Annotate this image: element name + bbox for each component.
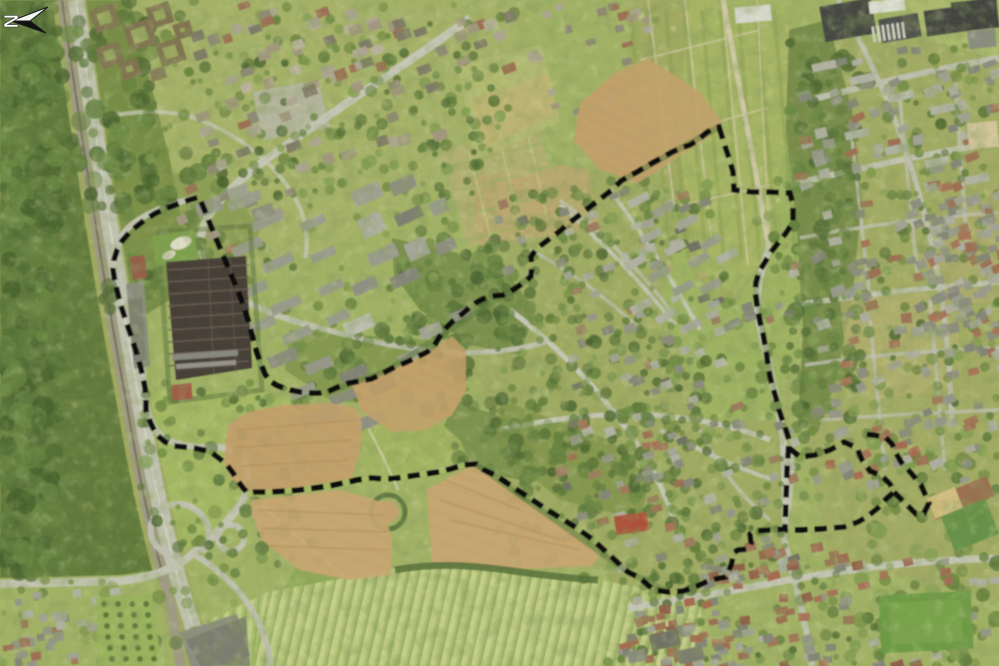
svg-text:N: N (0, 14, 21, 28)
